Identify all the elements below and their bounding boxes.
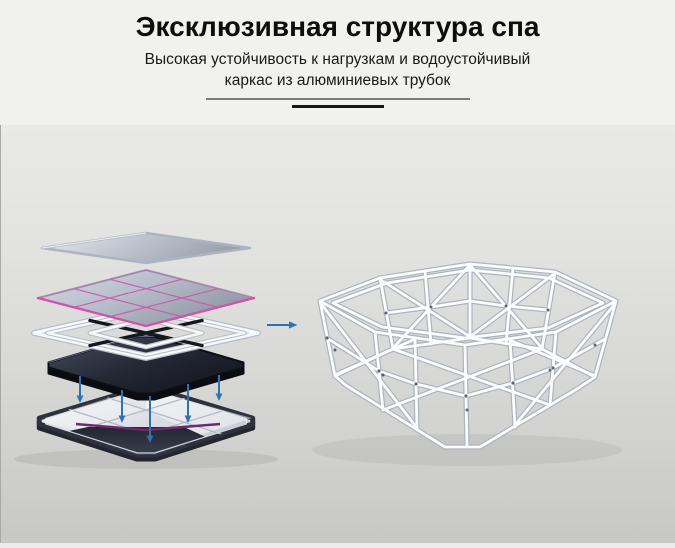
aluminum-frame-render (312, 264, 622, 466)
divider-line-short (292, 105, 384, 108)
subtitle-line-1: Высокая устойчивость к нагрузкам и водоу… (145, 51, 531, 68)
page-title: Эксклюзивная структура спа (0, 10, 675, 43)
subtitle: Высокая устойчивость к нагрузкам и водоу… (0, 49, 675, 91)
arrow-right-icon (267, 321, 298, 328)
divider-line-long (206, 98, 470, 100)
product-page: Эксклюзивная структура спа Высокая устой… (0, 0, 675, 548)
subtitle-line-2: каркас из алюминиевых трубок (225, 72, 451, 89)
header: Эксклюзивная структура спа Высокая устой… (0, 0, 675, 125)
exploded-layers-diagram (14, 233, 278, 469)
layer-bottom-tray (14, 389, 278, 469)
layer-seamed-cover (38, 270, 254, 326)
stage-canvas (0, 125, 675, 548)
cover-surface (38, 270, 254, 326)
layer-top-cover (42, 233, 250, 263)
product-illustration (0, 125, 675, 548)
bottom-strip (0, 543, 675, 548)
sheet-surface (42, 233, 250, 263)
